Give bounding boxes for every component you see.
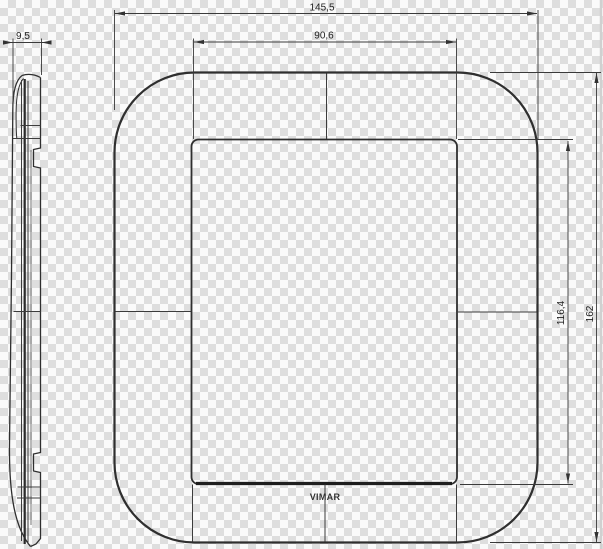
arrowhead-icon <box>115 11 125 15</box>
side-profile-view <box>9 74 41 546</box>
transparent-checkerboard-background: VIMAR 9,5 145,5 90,6 <box>0 0 603 549</box>
arrowhead-icon <box>566 474 570 484</box>
dimension-value-overall-width: 145,5 <box>309 3 334 14</box>
profile-top-cap <box>22 74 41 77</box>
central-opening-frame <box>192 140 458 485</box>
dimension-opening-width: 90,6 <box>194 31 457 140</box>
dimension-value-opening-width: 90,6 <box>314 31 334 42</box>
arrowhead-icon <box>446 40 456 44</box>
brand-logo-text: VIMAR <box>310 492 341 502</box>
dimension-overall-height: 162 <box>490 73 601 543</box>
arrowhead-icon <box>594 73 598 83</box>
arrowhead-icon <box>42 40 52 44</box>
profile-front-inner-curve <box>16 79 23 139</box>
arrowhead-icon <box>3 40 13 44</box>
arrowhead-icon <box>527 11 537 15</box>
technical-drawing-canvas: VIMAR 9,5 145,5 90,6 <box>0 0 603 549</box>
arrowhead-icon <box>566 141 570 151</box>
dimension-value-overall-height: 162 <box>585 305 596 322</box>
arrowhead-icon <box>594 532 598 542</box>
dimension-profile-depth: 9,5 <box>3 31 52 110</box>
dimension-value-depth: 9,5 <box>16 31 30 42</box>
dimension-value-opening-height: 116,4 <box>556 300 567 325</box>
cover-plate-outer-edge <box>115 73 538 543</box>
front-view: VIMAR <box>115 73 538 543</box>
arrowhead-icon <box>194 40 204 44</box>
